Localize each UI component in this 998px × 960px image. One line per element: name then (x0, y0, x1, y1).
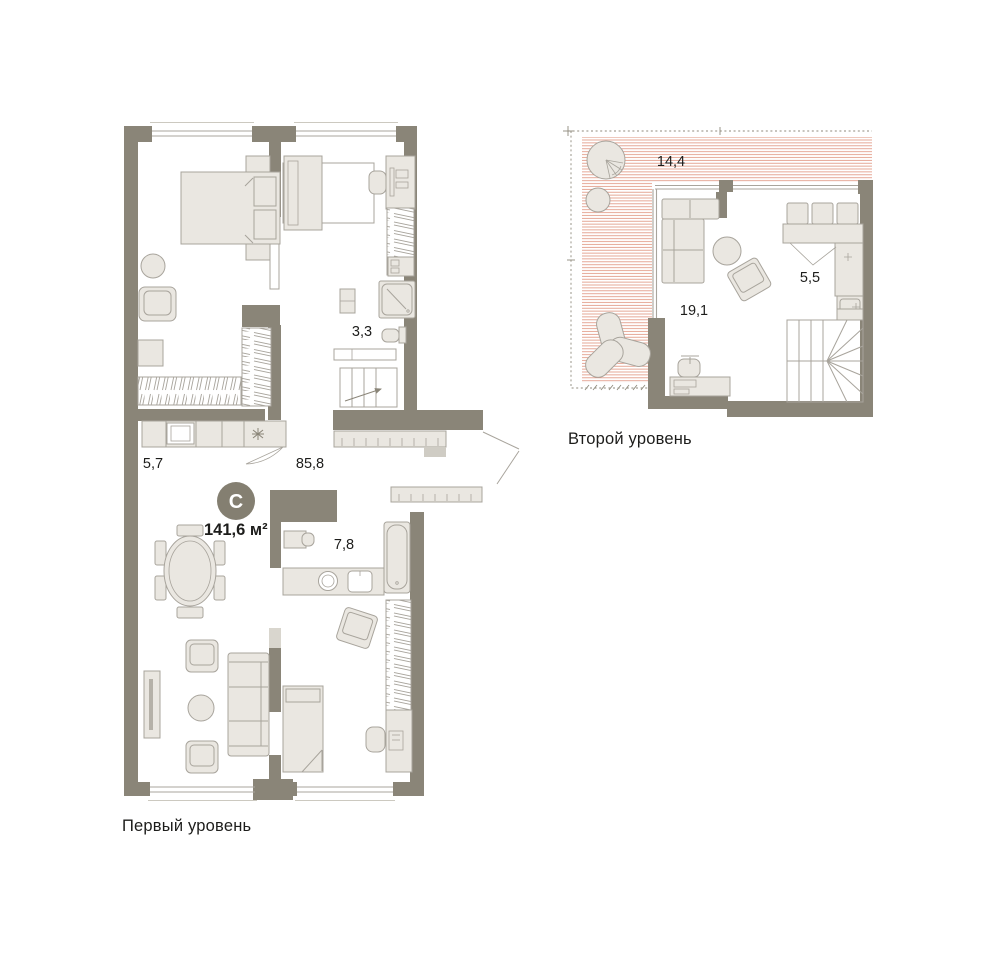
bath-sink (319, 572, 338, 591)
armchair (186, 741, 218, 773)
stair-landing (837, 309, 863, 320)
level2-caption: Второй уровень (568, 430, 692, 449)
desk-chair (366, 727, 385, 752)
pillow (254, 210, 276, 239)
door-swing (246, 447, 283, 464)
toilet-tank (399, 327, 406, 343)
armchair (336, 607, 379, 650)
bar-counter (783, 224, 863, 243)
armchair (186, 640, 218, 672)
room-area-kitchen2: 5,5 (800, 270, 820, 286)
counter-flap (790, 243, 836, 265)
dining-chair (155, 541, 166, 565)
kitchen-counter (142, 421, 286, 464)
bar-stool (837, 203, 858, 224)
bar-stool (787, 203, 808, 224)
level2-plan: 14,4 19,1 5,5 (550, 110, 890, 430)
vanity-shelf (334, 349, 396, 360)
bathtub (384, 522, 410, 593)
shoe-bench (391, 487, 482, 502)
stairs (787, 309, 863, 402)
pillow (254, 177, 276, 206)
room-area-terrace: 14,4 (657, 154, 685, 170)
kitchen2 (783, 203, 863, 318)
desk-chair (678, 359, 700, 377)
room-area-living: 85,8 (296, 456, 324, 472)
sofa (662, 219, 704, 283)
tv (149, 679, 153, 730)
single-bed (284, 156, 322, 230)
nightstand (246, 156, 270, 172)
total-area-label: 141,6 м² (204, 521, 268, 539)
bedroom1-furniture (138, 156, 280, 406)
total-area-badge: С 141,6 м² (204, 482, 268, 539)
level1-caption: Первый уровень (122, 817, 251, 836)
sofa (228, 653, 269, 756)
apartment-type-letter: С (229, 491, 243, 513)
pillow (286, 689, 320, 702)
living-room-furniture (144, 640, 323, 773)
desk-chair (369, 171, 386, 194)
bathroom-large (283, 522, 410, 595)
dining-table (164, 536, 216, 606)
stairs (340, 368, 397, 407)
toilet (382, 329, 399, 342)
bar-stool (812, 203, 833, 224)
entrance-door (483, 432, 519, 484)
coffee-table (188, 695, 214, 721)
hall-step (424, 447, 446, 457)
dresser (138, 340, 163, 366)
lounge-furniture (662, 199, 772, 396)
room-area-kitchen: 5,7 (143, 456, 163, 472)
bathroom-small (334, 257, 415, 360)
dining-chair (177, 607, 203, 618)
armchair (139, 287, 176, 321)
kitchen-counter (835, 243, 863, 296)
level1-plan: 5,7 85,8 3,3 7,8 С 141,6 м² (95, 105, 535, 815)
entrance-hall (334, 431, 519, 502)
nightstand (246, 244, 270, 260)
dining-chair (214, 541, 225, 565)
round-table (713, 237, 741, 265)
room-area-bath-small: 3,3 (352, 324, 372, 340)
desk (386, 710, 412, 772)
floorplan-canvas: 5,7 85,8 3,3 7,8 С 141,6 м² (0, 0, 998, 960)
stool (302, 533, 314, 546)
room-area-bath: 7,8 (334, 537, 354, 553)
dining-chair (177, 525, 203, 536)
plant (586, 188, 610, 212)
dressing-area (336, 600, 412, 772)
room-area-lounge: 19,1 (680, 303, 708, 319)
pouf (141, 254, 165, 278)
